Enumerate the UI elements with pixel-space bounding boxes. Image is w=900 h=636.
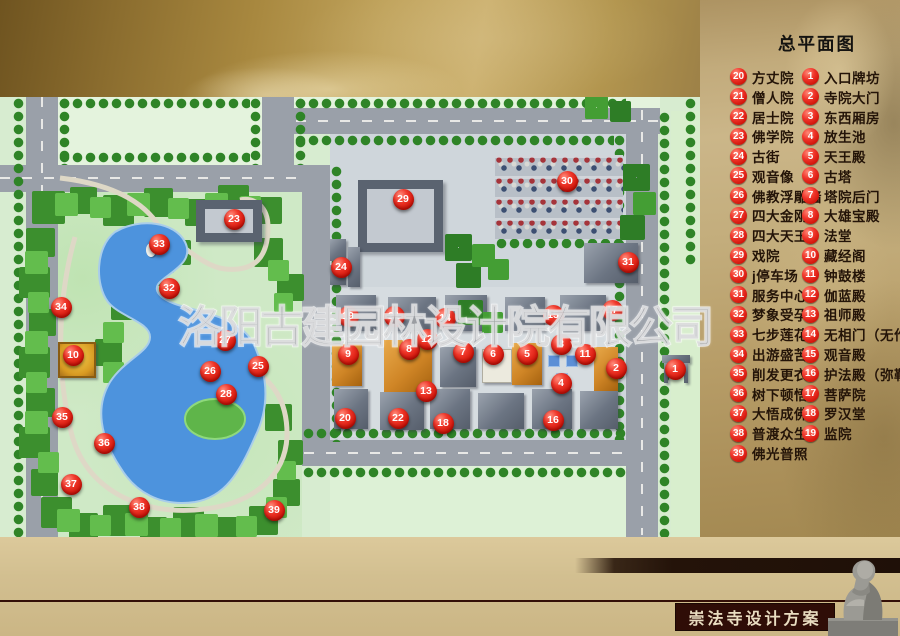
legend-item: 39 佛光普照 <box>730 443 822 463</box>
legend-label: 东西厢房 <box>824 107 880 127</box>
legend-label: 无相门（无作门） <box>824 324 900 344</box>
legend-label: 罗汉堂 <box>824 403 866 423</box>
entrance-archway-post <box>664 363 668 383</box>
legend-number-badge: 35 <box>730 365 747 382</box>
legend-label: 寺院大门 <box>824 87 880 107</box>
tree-clump <box>470 312 471 313</box>
building-south-court <box>580 391 618 429</box>
tree-row <box>58 97 250 110</box>
legend-number-badge: 31 <box>730 286 747 303</box>
legend-number-badge: 21 <box>730 88 747 105</box>
legend-number-badge: 20 <box>730 68 747 85</box>
legend-label: 祖师殿 <box>824 304 866 324</box>
legend-number-badge: 23 <box>730 128 747 145</box>
release-pond <box>556 373 568 385</box>
legend-item: 3 东西厢房 <box>802 107 900 127</box>
site-plan-map <box>0 97 700 537</box>
legend-item: 11 钟鼓楼 <box>802 265 900 285</box>
road-mid-vertical <box>302 165 330 466</box>
building-ancient-pagoda <box>482 349 512 383</box>
legend-number-badge: 39 <box>730 445 747 462</box>
building-sutra-pavilion <box>58 342 96 378</box>
building-old-street <box>348 247 360 287</box>
legend-item: 12 伽蓝殿 <box>802 285 900 305</box>
building-south-court <box>380 392 424 430</box>
legend-number-badge: 27 <box>730 207 747 224</box>
legend-label: 钟鼓楼 <box>824 265 866 285</box>
legend-label: 普渡众生 <box>752 423 808 443</box>
legend-item: 2 寺院大门 <box>802 87 900 107</box>
tree-row <box>249 97 262 165</box>
legend-item: 15 观音殿 <box>802 344 900 364</box>
legend-number-badge: 15 <box>802 346 819 363</box>
divider-line <box>0 600 900 602</box>
legend-number-badge: 9 <box>802 227 819 244</box>
building-north-court <box>388 297 436 331</box>
legend-label: 居士院 <box>752 107 794 127</box>
legend-number-badge: 3 <box>802 108 819 125</box>
legend-number-badge: 32 <box>730 306 747 323</box>
tree-row <box>302 466 626 479</box>
tree-row <box>294 97 626 110</box>
entrance-archway-post <box>684 363 688 383</box>
legend-number-badge: 17 <box>802 385 819 402</box>
lane-dash <box>304 452 624 454</box>
legend-number-badge: 30 <box>730 266 747 283</box>
legend-item: 19 监院 <box>802 423 900 443</box>
legend-number-badge: 28 <box>730 227 747 244</box>
building-heavenly-kings-hall <box>512 343 542 385</box>
legend-label: 入口牌坊 <box>824 67 880 87</box>
building-temple-gate <box>594 347 618 391</box>
lane-dash <box>0 177 300 179</box>
legend-label: 大雄宝殿 <box>824 205 880 225</box>
legend-item: 10 藏经阁 <box>802 245 900 265</box>
building-south-court <box>532 389 572 429</box>
legend-number-badge: 5 <box>802 148 819 165</box>
legend-label: 方丈院 <box>752 67 794 87</box>
legend-number-badge: 4 <box>802 128 819 145</box>
tree-clump <box>596 107 597 108</box>
building-south-court <box>478 393 524 429</box>
building-south-court <box>334 389 368 429</box>
legend-number-badge: 2 <box>802 88 819 105</box>
legend-item: 14 无相门（无作门） <box>802 324 900 344</box>
legend-number-badge: 25 <box>730 167 747 184</box>
statue-spot <box>146 243 156 257</box>
lane-dash <box>296 120 658 122</box>
park-tree-canopy-light <box>28 192 29 193</box>
legend-item: 13 祖师殿 <box>802 305 900 325</box>
legend-item: 4 放生池 <box>802 126 900 146</box>
legend-label: 大悟成佛 <box>752 403 808 423</box>
legend-number-badge: 6 <box>802 167 819 184</box>
legend-label: 戏院 <box>752 245 780 265</box>
legend-label: 监院 <box>824 423 852 443</box>
legend-label: 出游盛苦 <box>752 344 808 364</box>
legend-number-badge: 18 <box>802 405 819 422</box>
building-dharma-hall <box>332 344 362 386</box>
building-south-court <box>430 389 470 429</box>
tree-clump <box>636 177 637 178</box>
legend-number-badge: 16 <box>802 365 819 382</box>
legend-number-badge: 7 <box>802 187 819 204</box>
legend-label: 古街 <box>752 146 780 166</box>
legend-label: 藏经阁 <box>824 245 866 265</box>
legend-item: 5 天王殿 <box>802 146 900 166</box>
building-service-center <box>584 243 638 283</box>
legend-number-badge: 14 <box>802 326 819 343</box>
legend-label: 护法殿（弥勒殿） <box>824 364 900 384</box>
lane-dash <box>641 110 643 535</box>
release-pond <box>566 355 578 367</box>
legend-label: 菩萨院 <box>824 384 866 404</box>
legend-label: j停车场 <box>752 265 798 285</box>
legend-number-badge: 37 <box>730 405 747 422</box>
legend-item: 6 古塔 <box>802 166 900 186</box>
legend-number-badge: 22 <box>730 108 747 125</box>
legend-item: 8 大雄宝殿 <box>802 206 900 226</box>
legend-label: 放生池 <box>824 126 866 146</box>
legend-number-badge: 13 <box>802 306 819 323</box>
legend-label: 佛光普照 <box>752 443 808 463</box>
legend-label: 观音殿 <box>824 344 866 364</box>
tree-clump <box>458 247 459 248</box>
legend-number-badge: 26 <box>730 187 747 204</box>
lane-dash <box>41 97 43 537</box>
building-old-street <box>330 239 346 261</box>
release-pond <box>548 355 560 367</box>
legend-label: 法堂 <box>824 225 852 245</box>
legend-label: 削发更衣 <box>752 364 808 384</box>
building-north-court <box>505 297 545 331</box>
legend-number-badge: 19 <box>802 425 819 442</box>
building-north-court <box>560 295 606 331</box>
poster-master-plan: 总平面图 20 方丈院 21 僧人院 22 居士院 23 佛学院 <box>0 0 900 636</box>
legend-item: 7 塔院后门 <box>802 186 900 206</box>
legend-label: 四大金刚 <box>752 205 808 225</box>
legend-label: 四大天王 <box>752 225 808 245</box>
legend-number-badge: 29 <box>730 247 747 264</box>
legend-label: 树下顿悟 <box>752 384 808 404</box>
legend-number-badge: 1 <box>802 68 819 85</box>
legend-item: 18 罗汉堂 <box>802 404 900 424</box>
legend-label: 佛学院 <box>752 126 794 146</box>
legend-number-badge: 24 <box>730 148 747 165</box>
tree-row <box>294 134 614 147</box>
legend-number-badge: 34 <box>730 346 747 363</box>
legend-number-badge: 36 <box>730 385 747 402</box>
legend-number-badge: 38 <box>730 425 747 442</box>
building-north-court <box>445 295 487 331</box>
legend-label: 塔院后门 <box>824 186 880 206</box>
legend-label: 僧人院 <box>752 87 794 107</box>
top-gold-band <box>0 0 700 97</box>
legend-item: 9 法堂 <box>802 225 900 245</box>
legend-number-badge: 8 <box>802 207 819 224</box>
building-old-street <box>330 265 346 285</box>
parking-lot <box>495 155 623 239</box>
legend-label: 古塔 <box>824 166 852 186</box>
entrance-archway <box>662 355 690 363</box>
building-main-hall <box>384 340 432 392</box>
building-rear-gate-court <box>440 347 476 387</box>
legend-number-badge: 10 <box>802 247 819 264</box>
legend-item: 17 菩萨院 <box>802 384 900 404</box>
legend-label: 服务中心 <box>752 285 808 305</box>
guanyin-statue-spot <box>253 359 262 371</box>
project-title-banner: 崇法寺设计方案 <box>676 604 834 630</box>
legend-item: 16 护法殿（弥勒殿） <box>802 364 900 384</box>
building-theater-courtyard <box>358 180 443 252</box>
legend-item: 1 入口牌坊 <box>802 67 900 87</box>
legend-label: 七步莲花 <box>752 324 808 344</box>
building-north-court <box>336 295 376 331</box>
page-title: 总平面图 <box>778 31 856 56</box>
legend-column-right: 1 入口牌坊 2 寺院大门 3 东西厢房 4 放生池 5 天王殿 <box>802 67 900 443</box>
legend-number-badge: 12 <box>802 286 819 303</box>
legend-label: 伽蓝殿 <box>824 285 866 305</box>
project-title-label: 崇法寺设计方案 <box>688 605 821 629</box>
tree-row <box>12 97 25 537</box>
legend-label: 观音像 <box>752 166 794 186</box>
tree-row <box>58 151 250 164</box>
legend-number-badge: 11 <box>802 266 819 283</box>
legend-label: 梦象受孕 <box>752 304 808 324</box>
tree-row <box>684 97 697 267</box>
buddha-statue-image <box>824 548 900 636</box>
legend-label: 天王殿 <box>824 146 866 166</box>
legend-number-badge: 33 <box>730 326 747 343</box>
building-buddhist-academy <box>196 200 262 242</box>
tree-row <box>658 111 671 537</box>
